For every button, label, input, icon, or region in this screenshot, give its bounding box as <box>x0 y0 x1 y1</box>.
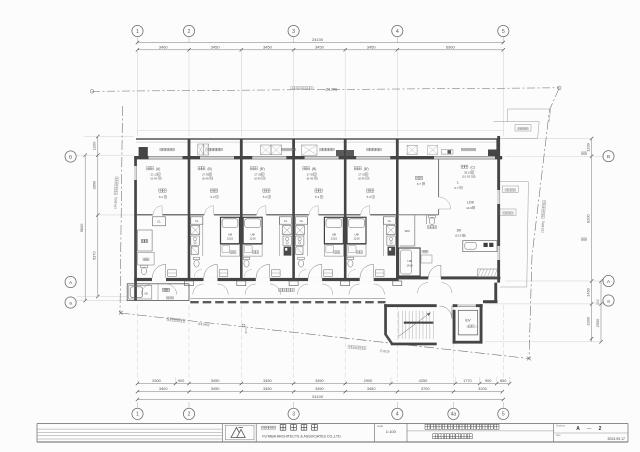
svg-text:—: — <box>587 426 592 431</box>
svg-text:): ) <box>317 176 318 180</box>
svg-text:DK: DK <box>457 229 462 233</box>
svg-text:(B): (B) <box>208 167 212 171</box>
svg-text:): ) <box>369 176 370 180</box>
svg-text:4250: 4250 <box>419 378 428 383</box>
svg-text:B: B <box>607 154 610 160</box>
svg-text:3450: 3450 <box>367 386 376 391</box>
svg-text:24100: 24100 <box>312 37 324 42</box>
svg-text:(14,600): (14,600) <box>113 197 118 209</box>
svg-text:1: 1 <box>136 412 139 418</box>
svg-text:(7,610): (7,610) <box>380 349 390 354</box>
svg-text:CL: CL <box>300 219 304 223</box>
svg-text:3: 3 <box>292 29 295 35</box>
svg-text:5.3: 5.3 <box>315 195 320 199</box>
svg-text:2: 2 <box>599 426 602 432</box>
svg-text:3700: 3700 <box>421 386 430 391</box>
svg-text:1216: 1216 <box>227 237 234 241</box>
svg-text:UB: UB <box>407 259 411 263</box>
svg-text:3450: 3450 <box>315 378 324 383</box>
svg-text:(6.40: (6.40 <box>151 176 158 180</box>
svg-text:3400: 3400 <box>159 44 169 49</box>
svg-text:1770: 1770 <box>463 378 472 383</box>
svg-text:CL: CL <box>284 219 288 223</box>
svg-text:3450: 3450 <box>211 378 220 383</box>
svg-text:(10.93: (10.93 <box>462 175 471 179</box>
svg-text:5: 5 <box>502 29 505 35</box>
svg-text:3200: 3200 <box>478 386 487 391</box>
svg-text:3450: 3450 <box>211 44 221 49</box>
svg-text:WIC: WIC <box>405 229 410 233</box>
svg-text:B: B <box>69 154 72 160</box>
svg-text:(8.45: (8.45 <box>202 176 209 180</box>
svg-text:900: 900 <box>178 378 185 383</box>
svg-text:L: L <box>457 181 459 185</box>
svg-text:2300: 2300 <box>585 316 590 325</box>
svg-text:(8.45: (8.45 <box>358 176 365 180</box>
svg-text:900: 900 <box>485 378 492 383</box>
svg-text:scale: scale <box>377 424 384 428</box>
svg-text:): ) <box>475 175 476 179</box>
svg-text:EV: EV <box>465 318 471 323</box>
svg-text:1200: 1200 <box>585 142 590 151</box>
svg-text:2900: 2900 <box>364 378 373 383</box>
svg-text:LDK: LDK <box>467 201 475 205</box>
svg-text:3450: 3450 <box>315 386 324 391</box>
svg-text:FUTABA ARCHITECTS & ASSOCIATES: FUTABA ARCHITECTS & ASSOCIATES CO.,LTD. <box>262 434 341 438</box>
svg-text:(8.45: (8.45 <box>254 176 261 180</box>
svg-text:1416: 1416 <box>406 263 413 267</box>
svg-text:2: 2 <box>188 29 191 35</box>
svg-text:1:100: 1:100 <box>386 429 397 434</box>
svg-text:UB: UB <box>144 292 148 296</box>
svg-text:1460: 1460 <box>585 287 590 296</box>
svg-text:8200: 8200 <box>585 213 590 222</box>
svg-text:2023.09.17: 2023.09.17 <box>607 437 625 441</box>
svg-text:3950: 3950 <box>92 180 97 189</box>
svg-text:3450: 3450 <box>263 44 273 49</box>
svg-text:3450: 3450 <box>315 44 325 49</box>
svg-text:9600: 9600 <box>79 223 84 232</box>
svg-text:(A): (A) <box>156 167 160 171</box>
svg-text:5.3: 5.3 <box>367 195 372 199</box>
svg-text:1216: 1216 <box>353 237 360 241</box>
svg-text:a: a <box>69 301 72 306</box>
svg-text:2: 2 <box>188 412 191 418</box>
svg-text:6.7: 6.7 <box>417 182 422 186</box>
svg-text:3: 3 <box>292 412 295 418</box>
svg-text:(C): (C) <box>471 165 475 169</box>
svg-text:3450: 3450 <box>367 44 377 49</box>
svg-text:2500: 2500 <box>595 318 600 327</box>
svg-text:1: 1 <box>136 29 139 35</box>
svg-text:(3: (3 <box>467 325 470 329</box>
svg-text:14.6: 14.6 <box>466 206 472 210</box>
svg-text:1216: 1216 <box>249 237 256 241</box>
svg-text:1200: 1200 <box>92 141 97 150</box>
svg-text:5.3: 5.3 <box>263 195 268 199</box>
svg-text:3450: 3450 <box>211 386 220 391</box>
svg-text:(B′): (B′) <box>364 167 369 171</box>
svg-text:3450: 3450 <box>263 386 272 391</box>
svg-text:CL: CL <box>195 219 199 223</box>
svg-text:): ) <box>476 325 477 329</box>
svg-text:3400: 3400 <box>159 386 168 391</box>
svg-text:1216: 1216 <box>331 237 338 241</box>
svg-text:6900: 6900 <box>446 44 456 49</box>
svg-text:(8.45: (8.45 <box>307 176 314 180</box>
svg-text:4: 4 <box>396 29 399 35</box>
svg-text:(28,290): (28,290) <box>326 87 338 91</box>
svg-text:4: 4 <box>396 412 399 418</box>
svg-text:(B′): (B′) <box>260 167 265 171</box>
svg-text:5370: 5370 <box>92 251 97 260</box>
svg-text:): ) <box>212 176 213 180</box>
svg-text:CL: CL <box>157 220 161 224</box>
svg-text:3450: 3450 <box>263 378 272 383</box>
svg-text:24100: 24100 <box>312 394 324 399</box>
svg-text:(13.9: (13.9 <box>455 234 462 238</box>
svg-text:5: 5 <box>502 412 505 418</box>
svg-text:6.7: 6.7 <box>454 186 459 190</box>
svg-text:Drawing: Drawing <box>556 425 565 428</box>
svg-text:(B): (B) <box>312 167 316 171</box>
svg-text:4a: 4a <box>451 412 457 418</box>
svg-text:2500: 2500 <box>152 378 161 383</box>
svg-text:A: A <box>576 426 580 432</box>
svg-text:CL: CL <box>388 219 392 223</box>
svg-text:): ) <box>265 176 266 180</box>
svg-text:5.3: 5.3 <box>210 195 215 199</box>
svg-text:850: 850 <box>500 378 507 383</box>
svg-text:a: a <box>607 299 610 304</box>
svg-text:47.0: 47.0 <box>244 328 248 334</box>
svg-text:date: date <box>556 434 561 437</box>
svg-text:): ) <box>465 234 466 238</box>
svg-text:): ) <box>161 176 162 180</box>
svg-text:8.4: 8.4 <box>159 195 164 199</box>
